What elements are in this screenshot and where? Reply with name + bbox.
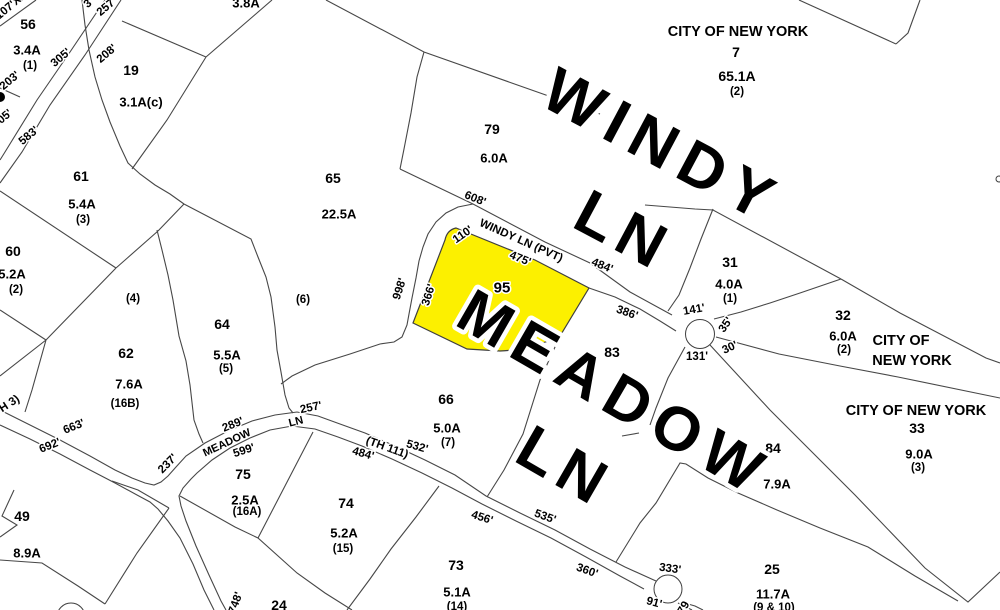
svg-text:73: 73 [448, 557, 464, 573]
svg-text:56: 56 [20, 16, 36, 32]
svg-text:(7): (7) [441, 437, 455, 449]
svg-text:CITY OF NEW YORK: CITY OF NEW YORK [668, 24, 809, 40]
svg-text:7: 7 [732, 44, 740, 60]
svg-text:(2): (2) [837, 344, 851, 356]
svg-text:65.1A: 65.1A [718, 68, 755, 84]
svg-text:8.9A: 8.9A [13, 546, 41, 561]
svg-text:(5): (5) [219, 363, 233, 375]
svg-text:(2): (2) [730, 86, 744, 98]
svg-text:CITY OF NEW YORK: CITY OF NEW YORK [846, 403, 987, 419]
svg-text:75: 75 [235, 466, 251, 482]
svg-text:4.0A: 4.0A [715, 277, 743, 292]
svg-text:(2): (2) [9, 284, 23, 296]
svg-text:9.0A: 9.0A [905, 447, 933, 462]
svg-text:(15): (15) [333, 543, 354, 555]
svg-text:60: 60 [5, 243, 21, 259]
svg-text:(3): (3) [911, 462, 925, 474]
svg-text:5.2A: 5.2A [0, 267, 26, 282]
svg-text:NEW YORK: NEW YORK [872, 353, 952, 369]
svg-text:64: 64 [214, 316, 230, 332]
svg-text:66: 66 [438, 391, 454, 407]
svg-text:22.5A: 22.5A [322, 207, 357, 222]
svg-text:62: 62 [118, 345, 134, 361]
svg-text:3.4A: 3.4A [13, 43, 41, 58]
svg-text:31: 31 [722, 254, 738, 270]
svg-text:65: 65 [325, 170, 341, 186]
svg-text:5.4A: 5.4A [68, 197, 96, 212]
svg-text:(16B): (16B) [111, 398, 140, 410]
svg-text:19: 19 [123, 62, 139, 78]
svg-text:7.6A: 7.6A [115, 377, 143, 392]
svg-text:(9 & 10): (9 & 10) [753, 602, 795, 610]
svg-text:(1): (1) [723, 293, 737, 305]
svg-text:33: 33 [909, 420, 925, 436]
svg-text:32: 32 [835, 307, 851, 323]
svg-text:6.0A: 6.0A [829, 329, 857, 344]
svg-text:7.9A: 7.9A [763, 477, 791, 492]
svg-text:5.1A: 5.1A [443, 585, 471, 600]
svg-text:5.5A: 5.5A [213, 348, 241, 363]
svg-text:(3): (3) [76, 214, 90, 226]
svg-text:6.0A: 6.0A [480, 151, 508, 166]
svg-text:5.2A: 5.2A [330, 526, 358, 541]
svg-text:3.8A: 3.8A [232, 0, 260, 11]
svg-text:(16A): (16A) [233, 506, 262, 518]
svg-text:(1): (1) [23, 60, 37, 72]
svg-text:24: 24 [271, 597, 287, 610]
svg-text:3.1A(c): 3.1A(c) [119, 95, 162, 110]
svg-text:(4): (4) [126, 293, 140, 305]
svg-text:25: 25 [764, 561, 780, 577]
svg-text:61: 61 [73, 168, 89, 184]
svg-text:11.7A: 11.7A [756, 587, 791, 602]
svg-text:5.0A: 5.0A [433, 421, 461, 436]
svg-text:79: 79 [484, 121, 500, 137]
svg-text:131': 131' [686, 351, 708, 363]
svg-text:CITY OF: CITY OF [873, 333, 930, 349]
svg-text:(14): (14) [447, 601, 468, 610]
svg-text:(6): (6) [296, 294, 310, 306]
svg-text:74: 74 [338, 495, 354, 511]
svg-text:49: 49 [14, 508, 30, 524]
